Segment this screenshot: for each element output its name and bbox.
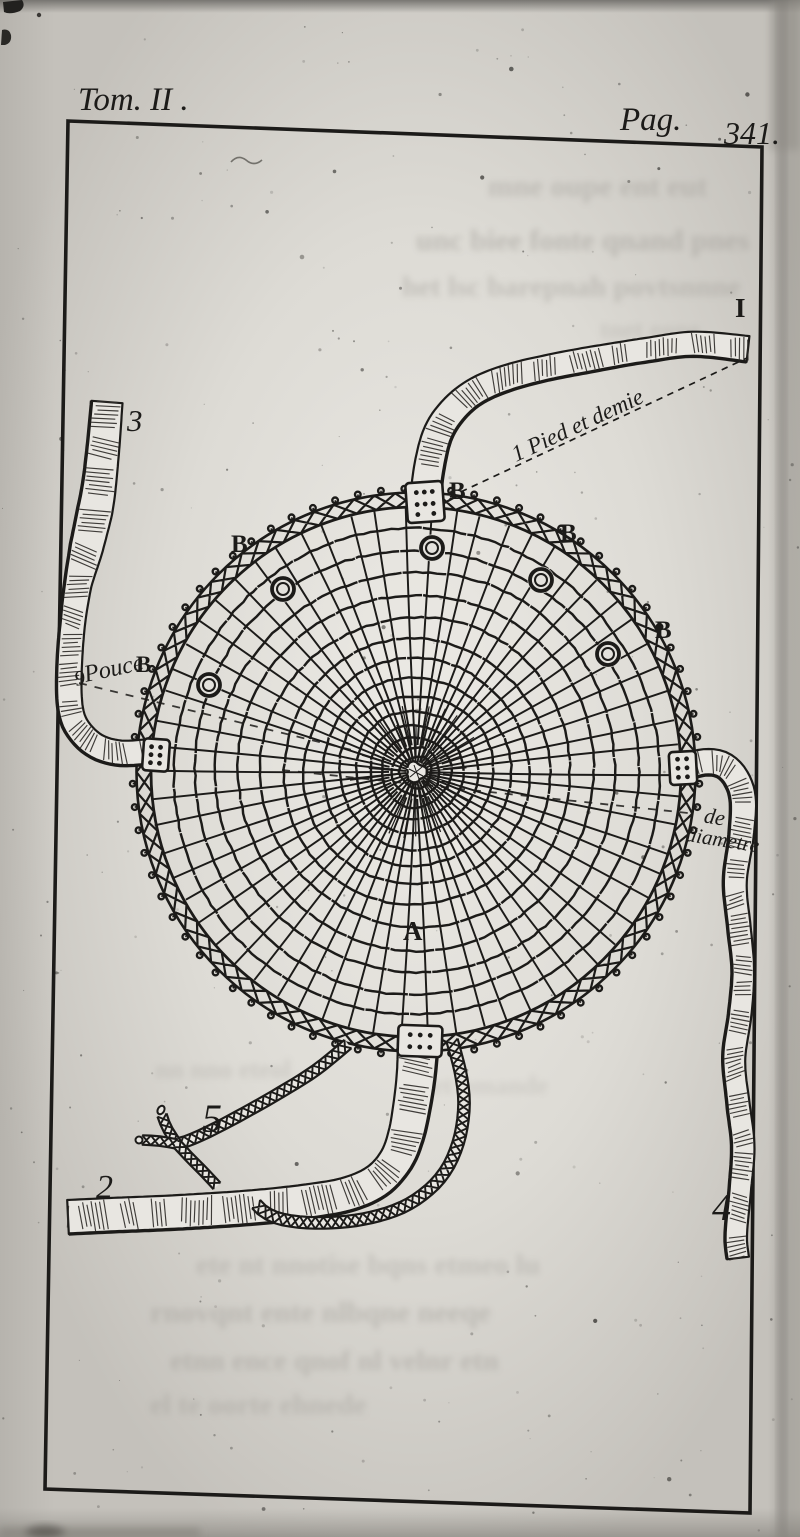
svg-text:2: 2 — [96, 1169, 113, 1206]
svg-text:het lsc barepnah povtsnnne: het lsc barepnah povtsnnne — [402, 271, 741, 303]
svg-text:B: B — [136, 652, 151, 677]
svg-text:3: 3 — [126, 403, 143, 438]
svg-text:5: 5 — [202, 1096, 222, 1141]
svg-text:4: 4 — [712, 1187, 731, 1229]
svg-text:B: B — [560, 520, 577, 547]
svg-text:341.: 341. — [723, 115, 780, 151]
svg-text:B: B — [655, 617, 672, 644]
svg-text:mne oupe ent eut: mne oupe ent eut — [488, 170, 707, 203]
svg-text:ete nt nnotise bqns etmeo lu: ete nt nnotise bqns etmeo lu — [196, 1249, 540, 1281]
svg-text:B: B — [231, 531, 248, 558]
svg-text:rnovqnt ente nlbqne neeqe: rnovqnt ente nlbqne neeqe — [150, 1296, 491, 1329]
svg-text:A: A — [403, 916, 423, 946]
svg-text:nn nno eteol: nn nno eteol — [155, 1055, 291, 1084]
svg-text:etnn ence qnof nl velnr etn: etnn ence qnof nl velnr etn — [170, 1345, 499, 1377]
svg-text:unc biee fonte qnand pnes: unc biee fonte qnand pnes — [416, 224, 749, 257]
svg-text:Pag.: Pag. — [619, 102, 681, 138]
svg-text:Tom. II .: Tom. II . — [78, 82, 189, 118]
svg-text:B: B — [449, 478, 466, 505]
svg-text:I: I — [735, 293, 746, 323]
svg-text:et bmande: et bmande — [432, 1071, 548, 1100]
svg-text:el te oorte ehnede: el te oorte ehnede — [150, 1389, 367, 1421]
